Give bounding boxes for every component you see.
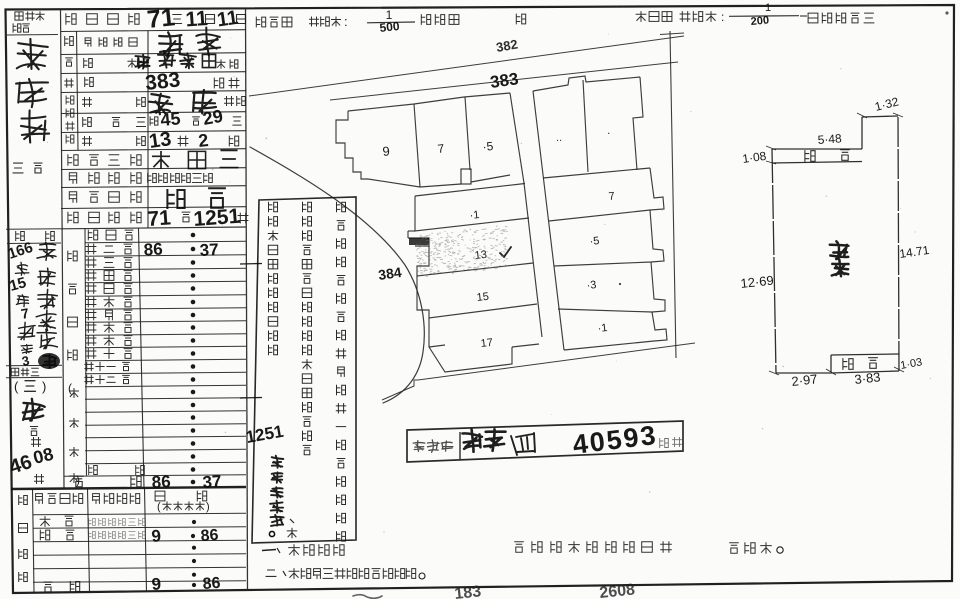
svg-text:·5: ·5 — [482, 139, 494, 154]
svg-text:29: 29 — [201, 106, 224, 129]
svg-text:5·48: 5·48 — [817, 131, 842, 147]
svg-text:): ) — [42, 379, 46, 394]
svg-text:71: 71 — [147, 206, 172, 231]
svg-text:71: 71 — [146, 3, 177, 34]
svg-text:): ) — [76, 473, 80, 487]
svg-text:86: 86 — [202, 575, 221, 593]
svg-text:·3: ·3 — [586, 279, 597, 292]
svg-text:500: 500 — [379, 19, 401, 35]
svg-text:37: 37 — [202, 472, 222, 492]
svg-text:..: .. — [556, 132, 562, 144]
svg-text:9: 9 — [151, 574, 162, 594]
svg-text:2: 2 — [197, 130, 209, 151]
svg-text:383: 383 — [144, 68, 181, 95]
svg-text:1: 1 — [765, 2, 771, 14]
svg-text:17: 17 — [480, 337, 493, 350]
svg-text:·1: ·1 — [469, 209, 480, 222]
svg-text:37: 37 — [199, 240, 219, 260]
svg-text:383: 383 — [489, 69, 520, 92]
svg-text::: : — [721, 10, 724, 24]
svg-text:3·83: 3·83 — [854, 369, 881, 387]
svg-text:183: 183 — [454, 583, 482, 599]
svg-text:(: ( — [157, 501, 161, 513]
svg-text:384: 384 — [377, 264, 403, 283]
svg-text:86: 86 — [151, 472, 171, 492]
svg-text:86: 86 — [143, 240, 163, 260]
svg-text:1251: 1251 — [193, 205, 242, 231]
svg-text:200: 200 — [750, 14, 769, 28]
svg-text:(: ( — [14, 379, 19, 394]
svg-text:13: 13 — [148, 128, 173, 153]
svg-text:86: 86 — [200, 527, 219, 545]
svg-text:2608: 2608 — [599, 581, 636, 599]
svg-text:): ) — [206, 501, 210, 513]
svg-text:15: 15 — [476, 291, 489, 304]
svg-text:7: 7 — [608, 190, 615, 203]
svg-text:·5: ·5 — [589, 235, 600, 248]
svg-text:45: 45 — [160, 108, 182, 130]
svg-text::: : — [344, 14, 348, 29]
svg-text:9: 9 — [151, 526, 162, 546]
svg-text:(: ( — [68, 381, 72, 395]
svg-text:·1: ·1 — [597, 322, 608, 335]
svg-text:.: . — [607, 123, 610, 137]
svg-text:2·97: 2·97 — [791, 371, 818, 389]
